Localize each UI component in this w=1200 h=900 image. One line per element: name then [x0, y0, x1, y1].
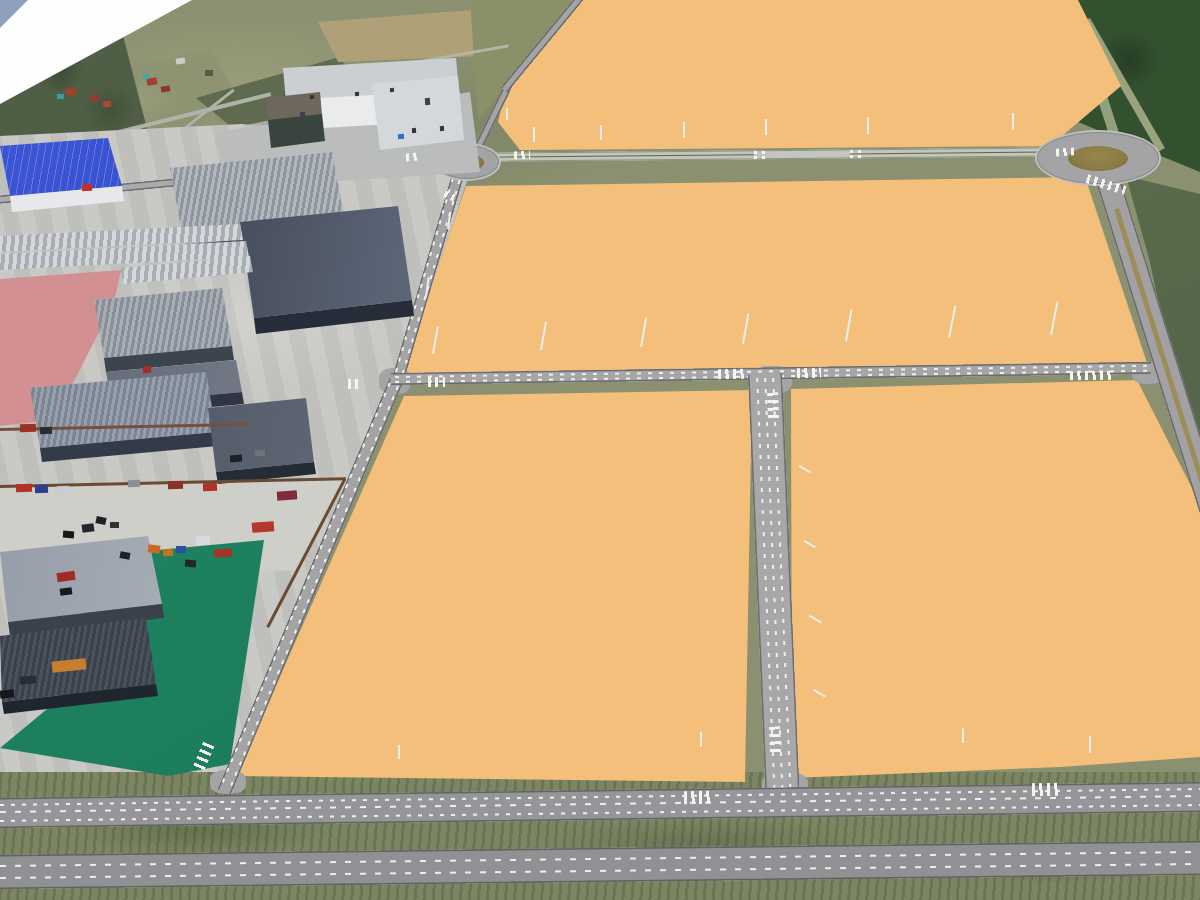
containers-21 — [255, 450, 265, 457]
crosswalks-7 — [718, 369, 744, 379]
containers-3 — [128, 480, 140, 487]
dots-3 — [762, 156, 765, 159]
dots-7 — [858, 155, 861, 158]
containers-5 — [203, 483, 217, 491]
dots-1 — [762, 151, 765, 154]
dots-14 — [425, 98, 430, 105]
crosswalks-0 — [406, 153, 421, 162]
crosswalks-8 — [797, 368, 821, 378]
roundabout-east-island — [1068, 146, 1128, 171]
lamps-23 — [1089, 736, 1091, 753]
containers-10 — [110, 522, 119, 528]
containers-4 — [168, 481, 183, 490]
containers-23 — [20, 675, 37, 685]
3d-plan-viewport[interactable] — [0, 0, 1200, 900]
containers-16 — [214, 549, 232, 558]
dots-10 — [143, 366, 151, 373]
containers-1 — [35, 485, 48, 493]
crosswalks-1 — [514, 150, 531, 159]
containers-8 — [82, 523, 95, 533]
dots-16 — [412, 128, 416, 133]
lamps-1 — [600, 125, 602, 140]
containers-24 — [0, 689, 14, 698]
lamps-21 — [700, 732, 702, 747]
containers-20 — [230, 455, 242, 463]
crosswalks-9 — [767, 392, 779, 418]
crosswalks-10 — [769, 726, 781, 752]
dots-2 — [754, 156, 757, 159]
dots-17 — [440, 126, 444, 131]
lamps-22 — [962, 728, 964, 743]
containers-19 — [40, 427, 52, 434]
crosswalks-5 — [348, 379, 363, 389]
dots-13 — [390, 88, 394, 92]
dots-0 — [754, 151, 757, 154]
crosswalks-3 — [1056, 147, 1075, 156]
containers-15 — [176, 546, 186, 553]
containers-14 — [163, 548, 174, 556]
lamps-4 — [867, 117, 869, 134]
aerial-11 — [161, 85, 171, 92]
aerial-15 — [205, 70, 213, 76]
dots-9 — [398, 134, 404, 139]
aerial-14 — [176, 57, 186, 64]
lamps-2 — [683, 122, 685, 138]
dots-5 — [858, 150, 861, 153]
lamps-5 — [1012, 113, 1014, 130]
crosswalks-11 — [684, 791, 714, 805]
containers-12 — [196, 536, 211, 546]
dots-11 — [310, 95, 314, 99]
containers-0 — [16, 484, 32, 493]
containers-18 — [20, 424, 36, 433]
lamps-3 — [765, 119, 767, 135]
dots-6 — [850, 155, 853, 158]
containers-9 — [63, 531, 74, 539]
aerial-8 — [90, 94, 100, 101]
aerial-7 — [66, 87, 77, 95]
aerial-9 — [103, 100, 112, 107]
aerial-12 — [57, 94, 64, 99]
dots-8 — [82, 184, 92, 192]
containers-17 — [119, 551, 130, 560]
crosswalks-12 — [1032, 783, 1058, 796]
dots-12 — [355, 92, 359, 96]
lamps-6 — [506, 108, 508, 120]
crosswalks-6 — [428, 377, 445, 387]
containers-11 — [252, 521, 275, 533]
dots-4 — [850, 150, 853, 153]
aerial-13 — [143, 74, 149, 79]
lamps-20 — [398, 745, 400, 759]
lamps-0 — [533, 127, 535, 142]
dots-15 — [300, 112, 305, 118]
crosswalks-14 — [1070, 371, 1112, 381]
containers-2 — [57, 486, 69, 493]
containers-13 — [148, 544, 161, 554]
containers-6 — [277, 490, 298, 500]
containers-27 — [185, 559, 197, 567]
